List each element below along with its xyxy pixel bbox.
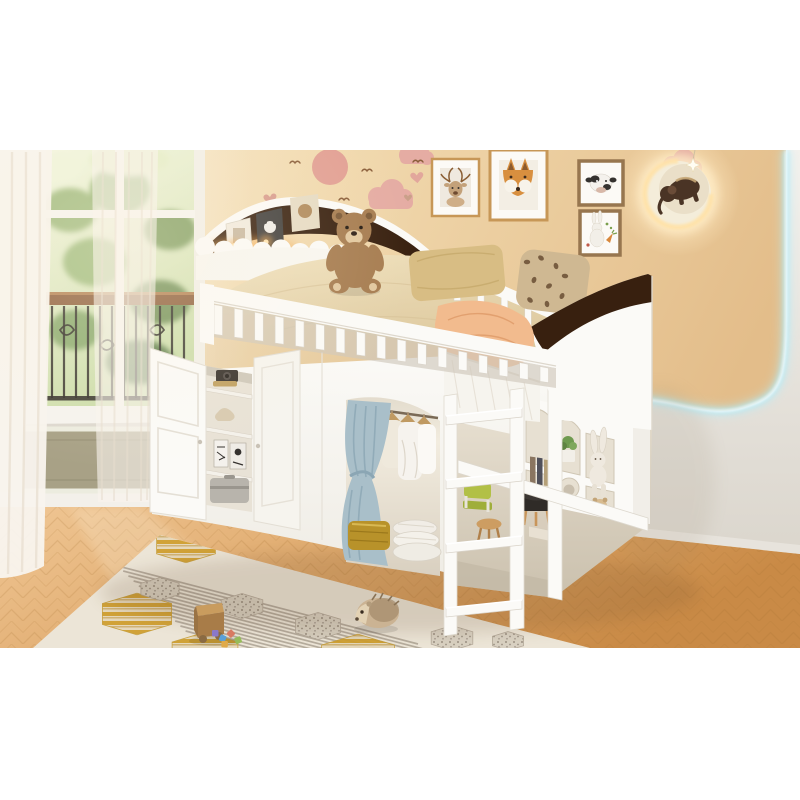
cabinet-items-part xyxy=(224,475,235,479)
deer-illustration-part xyxy=(447,197,465,207)
wooden-toy-cart-part xyxy=(189,636,241,646)
rabbit-illustration-part xyxy=(586,243,589,246)
photo-scene xyxy=(0,132,800,709)
deer-illustration-part xyxy=(444,183,450,187)
guardrail-slat xyxy=(499,359,508,377)
bunny-plush-part xyxy=(601,484,606,498)
gray-suitcase xyxy=(210,478,249,503)
cubby-plant-part xyxy=(562,450,575,462)
cubby-items-part xyxy=(530,456,536,483)
product-photo xyxy=(0,0,800,800)
cow-illustration-part xyxy=(605,180,607,182)
rabbit-illustration-part xyxy=(610,227,612,229)
rabbit-illustration-part xyxy=(598,211,602,224)
cow-art-frame xyxy=(579,161,623,205)
rabbit-illustration-part xyxy=(606,223,609,226)
hedgehog-plush-part xyxy=(369,598,399,622)
folded-quilt xyxy=(393,520,441,561)
tan-pillow-part xyxy=(408,244,506,302)
tan-pillow xyxy=(408,244,506,302)
cow-illustration-part xyxy=(596,180,598,182)
bunny-plush-part xyxy=(600,458,602,460)
warm-light-haze xyxy=(0,150,420,470)
deer-illustration-part xyxy=(458,187,460,189)
rabbit-illustration-part xyxy=(592,212,596,224)
guardrail-slat xyxy=(479,355,488,374)
fox-illustration-part xyxy=(516,187,520,191)
guardrail-slat xyxy=(540,366,549,382)
cabinet-items-part xyxy=(210,486,249,489)
cow-illustration-part xyxy=(610,178,617,183)
hedgehog-nose xyxy=(355,617,359,621)
guardrail-slat xyxy=(459,351,468,371)
deer-illustration-part xyxy=(453,191,458,195)
cow-illustration-part xyxy=(596,187,606,193)
cow-illustration-part xyxy=(591,176,600,183)
bunny-plush-part xyxy=(590,465,607,487)
product-image-canvas xyxy=(0,0,800,800)
elephant-ear xyxy=(668,186,677,195)
guardrail-slat xyxy=(438,347,447,368)
fox-illustration-part xyxy=(524,176,527,179)
fox-illustration-part xyxy=(505,180,518,193)
fox-art-frame xyxy=(490,150,547,220)
bunny-plush-part xyxy=(595,458,597,460)
fox-illustration-part xyxy=(510,176,513,179)
cubby-items-part xyxy=(603,498,608,503)
rear-right-leg xyxy=(633,414,650,524)
gold-blanket xyxy=(348,521,390,550)
rabbit-art-frame xyxy=(580,211,620,256)
ladder-rail-left xyxy=(444,394,457,636)
garment-white-2 xyxy=(418,424,436,474)
ladder-rail-right xyxy=(510,388,524,630)
toy-block xyxy=(221,641,228,648)
deer-illustration-part xyxy=(461,183,467,187)
deer-illustration-part xyxy=(452,187,454,189)
wooden-toy-cart-part xyxy=(199,635,207,643)
cubby-plant-part xyxy=(569,442,577,450)
hedgehog-ear xyxy=(366,601,371,606)
guardrail-slat xyxy=(520,363,529,380)
toy-block xyxy=(212,630,219,637)
fox-illustration-part xyxy=(519,180,532,193)
leopard-spot xyxy=(524,260,530,265)
folded-quilt-part xyxy=(393,543,441,561)
cubby-items-part xyxy=(537,457,543,485)
hedgehog-plush-part xyxy=(360,610,363,613)
deer-art-frame xyxy=(432,159,479,216)
bunny-plush-part xyxy=(592,484,597,498)
rabbit-illustration-part xyxy=(590,229,604,247)
